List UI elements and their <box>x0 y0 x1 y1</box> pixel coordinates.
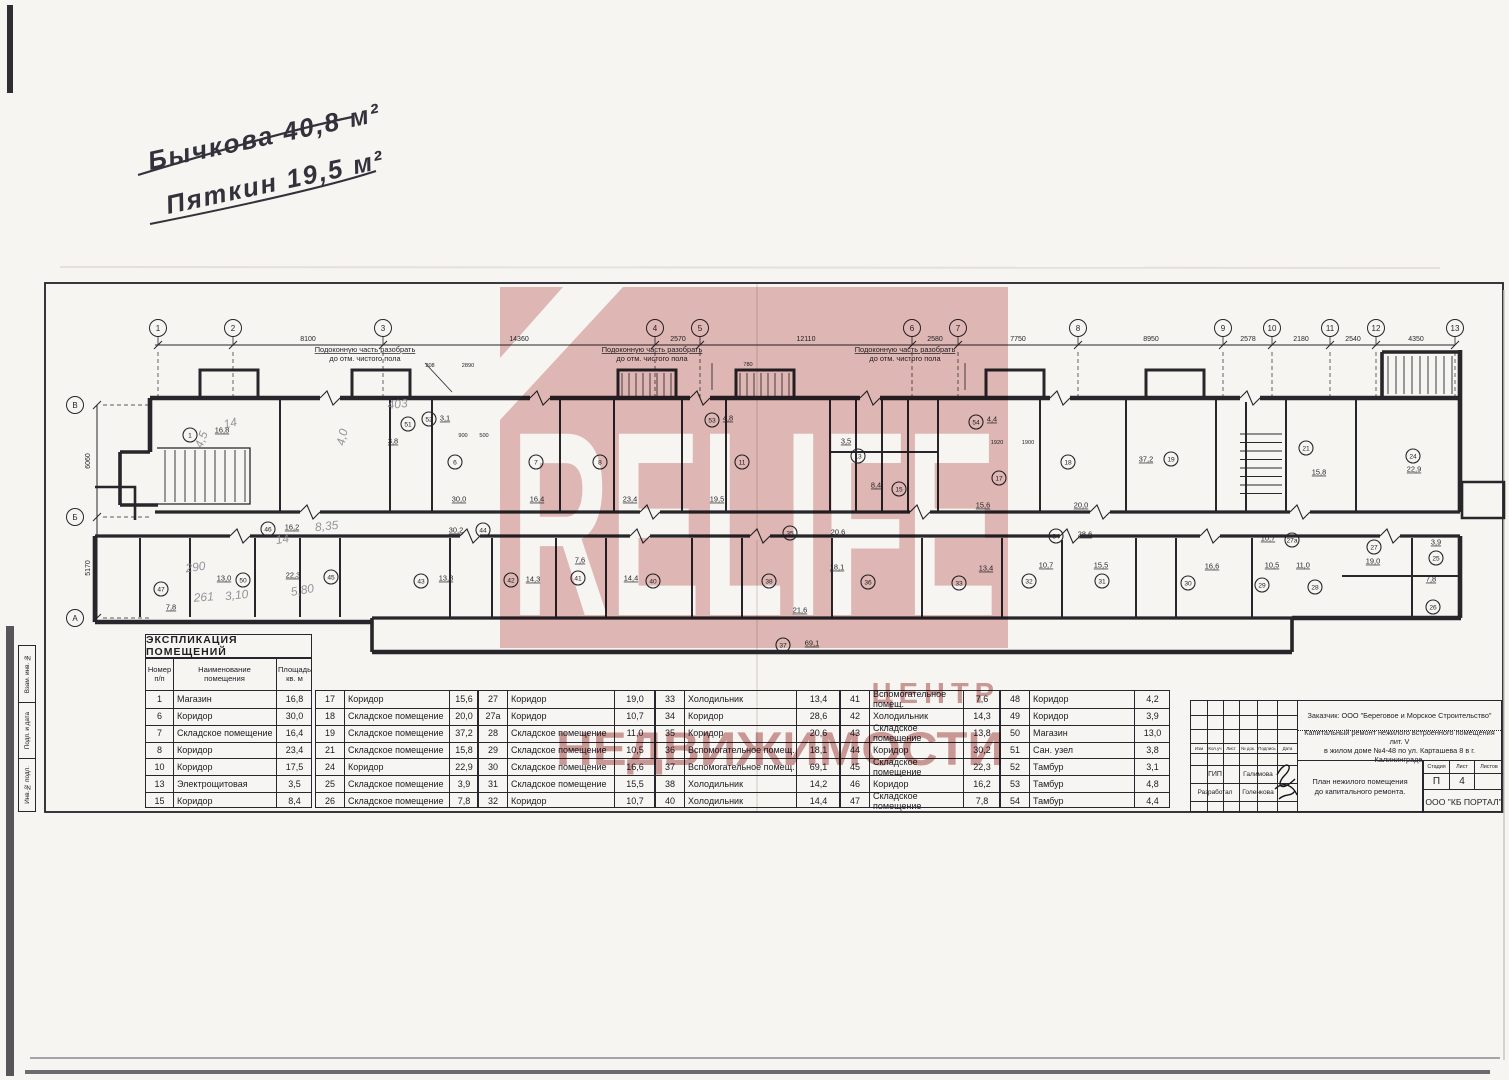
stage-value: П <box>1423 773 1449 789</box>
room-area: 14,3 <box>526 575 540 584</box>
room-number: 19 <box>1167 457 1175 464</box>
explication-cell-number: 10 <box>146 758 173 775</box>
explication-cell-area: 16,6 <box>614 758 656 775</box>
room-area: 14,4 <box>624 574 638 583</box>
explication-cell-number: 35 <box>656 725 684 742</box>
room-area: 20,6 <box>831 528 845 537</box>
room-label: 5013,0 <box>217 573 250 587</box>
explication-cell-name: Холодильник <box>684 691 800 708</box>
explication-cell-area: 7,8 <box>963 792 1001 809</box>
explication-cell-number: 36 <box>656 742 684 759</box>
axis-label: Б <box>72 513 77 522</box>
explication-cell-number: 41 <box>841 691 869 708</box>
room-area: 23,4 <box>623 495 637 504</box>
room-area: 19,0 <box>1366 557 1380 566</box>
axis-label: 5 <box>698 324 703 333</box>
explication-group: 1Магазин16,86Коридор30,07Складское помещ… <box>145 690 312 808</box>
explication-cell-area: 15,5 <box>614 775 656 792</box>
explication-cell-area: 16,4 <box>276 725 313 742</box>
explication-cell-name: Сан. узел <box>1029 742 1138 759</box>
annotation-line-2: до отм. чистого пола <box>869 354 941 363</box>
room-number: 8 <box>598 460 602 467</box>
side-strip-label: Подп. и дата <box>24 712 31 749</box>
pencil-note: 403 <box>387 396 409 412</box>
explication-cell-name: Складское помещение <box>344 742 453 759</box>
stage-header: Стадия <box>1423 761 1449 773</box>
explication-cell-area: 15,8 <box>449 742 479 759</box>
explication-cell-area: 22,9 <box>449 758 479 775</box>
room-number: 35 <box>786 531 794 538</box>
room-number: 41 <box>574 576 582 583</box>
room-label: 3210,7 <box>1022 561 1053 588</box>
explication-cell-number: 7 <box>146 725 173 742</box>
room-label: 1119,5 <box>710 455 749 504</box>
explication-cell-area: 14,2 <box>796 775 841 792</box>
explication-cell-name: Складское помещение <box>507 775 618 792</box>
room-area: 7,8 <box>1426 575 1436 584</box>
explication-cell-name: Коридор <box>173 758 280 775</box>
explication-cell-number: 19 <box>316 725 344 742</box>
explication-cell-area: 11,0 <box>614 725 656 742</box>
room-number: 32 <box>1025 579 1033 586</box>
explication-cell-number: 34 <box>656 708 684 725</box>
explication-cell-number: 15 <box>146 792 173 809</box>
explication-cell-name: Тамбур <box>1029 775 1138 792</box>
room-area: 3,9 <box>1431 538 1441 547</box>
axis-label: 12 <box>1372 324 1381 333</box>
pencil-note: 5,80 <box>290 581 316 599</box>
dimension-value: 2540 <box>1345 336 1361 343</box>
explication-cell-name: Складское помещение <box>869 725 967 742</box>
explication-cell-area: 22,3 <box>963 758 1001 775</box>
room-label: 1715,6 <box>976 471 1006 510</box>
explication-header-num: Номер п/п <box>146 659 173 691</box>
room-area: 22,3 <box>286 571 300 580</box>
room-label: 716,4 <box>529 455 544 504</box>
explication-cell-area: 13,4 <box>796 691 841 708</box>
room-number: 47 <box>157 587 165 594</box>
explication-cell-number: 37 <box>656 758 684 775</box>
explication-cell-number: 45 <box>841 758 869 775</box>
explication-cell-area: 10,5 <box>614 742 656 759</box>
room-number: 53 <box>708 418 716 425</box>
explication-cell-number: 13 <box>146 775 173 792</box>
explication-cell-number: 43 <box>841 725 869 742</box>
room-area: 3,8 <box>388 437 398 446</box>
room-label: 158,4 <box>871 481 906 496</box>
explication-cell-area: 3,5 <box>276 775 313 792</box>
room-label: 630,0 <box>448 455 466 504</box>
explication-group: 33Холодильник13,434Коридор28,635Коридор2… <box>655 690 840 808</box>
explication-cell-name: Складское помещение <box>173 725 280 742</box>
room-label: 2719,0 <box>1366 540 1381 566</box>
explication-cell-area: 10,7 <box>614 708 656 725</box>
room-number: 6 <box>453 460 457 467</box>
explication-cell-name: Электрощитовая <box>173 775 280 792</box>
room-number: 38 <box>765 579 773 586</box>
room-number: 51 <box>404 422 412 429</box>
title-block-right: Заказчик: ООО "Береговое и Морское Строи… <box>1298 701 1501 811</box>
explication-cell-name: Коридор <box>507 691 618 708</box>
pencil-note: 14 <box>222 415 238 432</box>
explication-cell-name: Вспомогательное помещ. <box>684 742 800 759</box>
axis-label: 1 <box>156 324 161 333</box>
explication-cell-area: 16,8 <box>276 691 313 708</box>
explication-cell-area: 18,1 <box>796 742 841 759</box>
annotation-line-1: Подоконную часть разобрать <box>602 345 703 354</box>
small-dimension: 780 <box>743 362 752 368</box>
room-label: 823,4 <box>593 455 637 504</box>
room-area: 11,0 <box>1296 561 1310 570</box>
stamp-name: Галимова <box>1239 765 1277 783</box>
explication-cell-number: 8 <box>146 742 173 759</box>
explication-cell-number: 47 <box>841 792 869 809</box>
explication-cell-name: Складское помещение <box>507 742 618 759</box>
explication-cell-number: 1 <box>146 691 173 708</box>
explication-cell-number: 52 <box>1001 758 1029 775</box>
stamp-col-header: № док. <box>1239 743 1257 753</box>
explication-cell-number: 29 <box>479 742 507 759</box>
explication-cell-number: 33 <box>656 691 684 708</box>
explication-cell-area: 3,8 <box>1134 742 1171 759</box>
room-area: 7,8 <box>166 603 176 612</box>
explication-cell-number: 17 <box>316 691 344 708</box>
explication-cell-area: 30,2 <box>963 742 1001 759</box>
room-label: 1820,0 <box>1061 455 1088 510</box>
axis-label: 4 <box>653 324 658 333</box>
explication-cell-number: 21 <box>316 742 344 759</box>
pencil-note: 290 <box>184 559 207 576</box>
explication-cell-area: 3,1 <box>1134 758 1171 775</box>
pencil-note: 4,0 <box>334 427 351 447</box>
room-label: 477,8 <box>154 582 176 612</box>
dimension-value: 12110 <box>797 336 816 343</box>
explication-cell-name: Коридор <box>173 792 280 809</box>
room-area: 69,1 <box>805 639 819 648</box>
room-area: 18,1 <box>830 563 844 572</box>
explication-cell-number: 24 <box>316 758 344 775</box>
room-area: 3,1 <box>440 414 450 423</box>
explication-cell-area: 7,8 <box>449 792 479 809</box>
explication-cell-area: 14,4 <box>796 792 841 809</box>
explication-header-area: Площадь кв. м <box>276 659 313 691</box>
explication-cell-number: 48 <box>1001 691 1029 708</box>
room-number: 43 <box>417 579 425 586</box>
explication-cell-number: 42 <box>841 708 869 725</box>
explication-cell-number: 54 <box>1001 792 1029 809</box>
room-label: 534,8 <box>705 413 733 427</box>
room-number: 36 <box>864 580 872 587</box>
room-number: 29 <box>1258 583 1266 590</box>
explication-cell-name: Складское помещение <box>344 792 453 809</box>
dimension-value: 8100 <box>300 336 316 343</box>
room-label: 2811,0 <box>1296 561 1322 594</box>
explication-cell-number: 18 <box>316 708 344 725</box>
title-block: Изм Кол.уч Лист № док. Подпись Дата ГИП … <box>1190 700 1502 812</box>
small-dimension: 500 <box>479 433 488 439</box>
explication-header: Номер п/пНаименование помещенияПлощадь к… <box>145 658 312 690</box>
room-area: 37,2 <box>1139 455 1153 464</box>
explication-cell-number: 32 <box>479 792 507 809</box>
explication-cell-area: 19,0 <box>614 691 656 708</box>
explication-cell-area: 13,0 <box>1134 725 1171 742</box>
room-number: 18 <box>1064 460 1072 467</box>
explication-cell-name: Коридор <box>173 708 280 725</box>
explication-cell-name: Коридор <box>507 792 618 809</box>
explication-cell-number: 49 <box>1001 708 1029 725</box>
axis-label: 10 <box>1268 324 1277 333</box>
room-number: 54 <box>972 420 980 427</box>
dimension-value: 4350 <box>1408 336 1424 343</box>
room-number: 40 <box>649 579 657 586</box>
wall <box>736 370 794 398</box>
stamp-name: Голенкова <box>1239 783 1277 801</box>
explication-cell-name: Коридор <box>1029 708 1138 725</box>
explication-cell-name: Вспомогательное помещ. <box>684 758 800 775</box>
wall <box>157 448 250 504</box>
small-dimension: 208 <box>425 363 434 369</box>
explication-cell-number: 27а <box>479 708 507 725</box>
explication-cell-name: Магазин <box>173 691 280 708</box>
small-dimension: 2890 <box>462 363 474 369</box>
room-label: 4214,3 <box>504 573 540 587</box>
room-area: 7,6 <box>575 556 585 565</box>
room-area: 15,5 <box>1094 561 1108 570</box>
small-dimension: 1900 <box>1022 440 1034 446</box>
explication-cell-area: 14,3 <box>963 708 1001 725</box>
scan-artifact <box>6 626 14 1076</box>
stamp-role: Разработал <box>1191 783 1239 801</box>
explication-cell-name: Складское помещение <box>344 775 453 792</box>
room-label: 4313,8 <box>414 574 453 588</box>
room-number: 27а <box>1286 538 1297 545</box>
explication-group: 17Коридор15,618Складское помещение20,019… <box>315 690 478 808</box>
explication-cell-name: Коридор <box>344 691 453 708</box>
room-number: 13 <box>854 454 862 461</box>
explication-cell-name: Складское помещение <box>344 725 453 742</box>
pencil-note: 8,35 <box>314 518 339 534</box>
room-number: 50 <box>239 578 247 585</box>
drawing-title-line-1: План нежилого помещения <box>1312 777 1407 787</box>
explication-cell-area: 23,4 <box>276 742 313 759</box>
room-number: 11 <box>739 460 746 467</box>
room-number: 15 <box>895 487 903 494</box>
handwritten-note: Бычкова 40,8 м² Пяткин 19,5 м² <box>138 97 387 224</box>
room-label: 417,6 <box>571 556 585 585</box>
room-number: 46 <box>264 527 272 534</box>
room-area: 10,7 <box>1039 561 1053 570</box>
room-number: 45 <box>327 575 335 582</box>
explication-cell-number: 40 <box>656 792 684 809</box>
pencil-note: 3,10 <box>224 587 249 603</box>
room-number: 30 <box>1184 581 1192 588</box>
room-area: 30,0 <box>452 495 466 504</box>
room-area: 13,0 <box>217 574 231 583</box>
wall <box>1462 482 1504 518</box>
room-number: 37 <box>779 643 787 650</box>
room-label: 2910,5 <box>1255 561 1279 592</box>
axis-label: 11 <box>1326 324 1335 333</box>
explication-cell-area: 10,7 <box>614 792 656 809</box>
explication-cell-name: Складское помещение <box>869 792 967 809</box>
stamp-role: ГИП <box>1191 765 1239 783</box>
room-number: 24 <box>1409 454 1417 461</box>
project-description: Капитальный ремонт нежилого встроенного … <box>1298 731 1501 761</box>
explication-cell-name: Холодильник <box>684 792 800 809</box>
room-area: 16,6 <box>1205 562 1219 571</box>
explication-cell-area: 8,4 <box>276 792 313 809</box>
explication-cell-area: 4,4 <box>1134 792 1171 809</box>
sheets-total <box>1474 773 1503 789</box>
room-label: 3115,5 <box>1094 561 1109 588</box>
stamp-col-header: Подпись <box>1257 743 1277 753</box>
room-number: 28 <box>1311 585 1319 592</box>
annotation-line-2: до отм. чистого пола <box>616 354 688 363</box>
explication-cell-area: 17,5 <box>276 758 313 775</box>
explication-cell-number: 38 <box>656 775 684 792</box>
dimension-value: 2570 <box>670 336 686 343</box>
dimension-value: 2180 <box>1293 336 1309 343</box>
room-area: 21,6 <box>793 606 807 615</box>
wall <box>200 370 258 398</box>
side-strip-label: Взам. инв. № <box>24 654 31 693</box>
room-area: 30,2 <box>449 526 463 535</box>
title-block-left-grid: Изм Кол.уч Лист № док. Подпись Дата ГИП … <box>1191 701 1298 811</box>
explication-cell-name: Складское помещение <box>344 708 453 725</box>
dimension-value: 2580 <box>927 336 943 343</box>
room-number: 21 <box>1302 446 1310 453</box>
explication-cell-area: 16,2 <box>963 775 1001 792</box>
drawing-title-line-2: до капитального ремонта. <box>1315 787 1406 797</box>
room-label: 1937,2 <box>1139 452 1178 466</box>
room-area: 4,4 <box>987 415 997 424</box>
explication-cell-name: Коридор <box>344 758 453 775</box>
dimension-value: 2578 <box>1240 336 1256 343</box>
room-number: 42 <box>507 578 515 585</box>
stamp-col-header: Кол.уч <box>1207 743 1223 753</box>
stamp-col-header: Изм <box>1191 743 1207 753</box>
room-area: 19,5 <box>710 495 724 504</box>
pencil-note: 261 <box>192 589 214 604</box>
explication-group: 27Коридор19,027аКоридор10,728Складское п… <box>478 690 655 808</box>
explication-cell-area: 69,1 <box>796 758 841 775</box>
signature-scribble <box>1273 755 1299 807</box>
wall <box>618 370 676 398</box>
explication-cell-area: 28,6 <box>796 708 841 725</box>
explication-cell-name: Складское помещение <box>507 725 618 742</box>
explication-cell-area: 3,9 <box>1134 708 1171 725</box>
room-label: 513,8 <box>388 417 415 446</box>
axis-label: 6 <box>910 324 915 333</box>
explication-cell-area: 37,2 <box>449 725 479 742</box>
explication-cell-area: 4,2 <box>1134 691 1171 708</box>
wall <box>1146 370 1204 398</box>
room-number: 26 <box>1429 605 1437 612</box>
explication-cell-number: 30 <box>479 758 507 775</box>
explication-cell-area: 3,9 <box>449 775 479 792</box>
company-name: ООО "КБ ПОРТАЛ" <box>1423 789 1503 813</box>
annotation-line-1: Подоконную часть разобрать <box>855 345 956 354</box>
room-label: 267,8 <box>1426 575 1440 614</box>
explication-cell-area: 15,6 <box>449 691 479 708</box>
stamp-col-header: Дата <box>1277 743 1298 753</box>
explication-cell-number: 25 <box>316 775 344 792</box>
explication-cell-area: 20,6 <box>796 725 841 742</box>
axis-label: 9 <box>1221 324 1226 333</box>
room-area: 22,9 <box>1407 465 1421 474</box>
explication-cell-area: 4,8 <box>1134 775 1171 792</box>
room-number: 44 <box>479 528 487 535</box>
room-label: 3618,1 <box>830 563 875 589</box>
explication-cell-number: 53 <box>1001 775 1029 792</box>
explication-cell-area: 20,0 <box>449 708 479 725</box>
axis-label: В <box>72 401 77 410</box>
dimension-value: 14360 <box>509 336 529 343</box>
explication-cell-name: Коридор <box>684 708 800 725</box>
explication-cell-name: Холодильник <box>684 775 800 792</box>
explication-cell-number: 27 <box>479 691 507 708</box>
room-area: 4,8 <box>723 414 733 423</box>
explication-cell-number: 28 <box>479 725 507 742</box>
room-number: 27 <box>1370 545 1378 552</box>
room-label: 2422,9 <box>1406 449 1421 474</box>
room-area: 28,6 <box>1078 530 1092 539</box>
project-line-1: Капитальный ремонт нежилого встроенного … <box>1298 728 1501 746</box>
axis-label: 3 <box>381 324 386 333</box>
explication-cell-name: Складское помещение <box>869 758 967 775</box>
stage-table: Стадия Лист Листов П 4 ООО "КБ ПОРТАЛ" <box>1423 761 1503 813</box>
side-strip-label: Инв.№ подл. <box>24 766 31 804</box>
room-number: 33 <box>955 581 963 588</box>
explication-cell-name: Коридор <box>507 708 618 725</box>
sheets-header: Листов <box>1474 761 1503 773</box>
dimension-value: 6060 <box>85 453 92 469</box>
explication-cell-number: 6 <box>146 708 173 725</box>
drawing-title: План нежилого помещения до капитального … <box>1298 761 1423 813</box>
wall <box>986 370 1044 398</box>
explication-cell-name: Магазин <box>1029 725 1138 742</box>
scan-artifact <box>7 5 13 93</box>
scan-edge <box>25 1070 1490 1074</box>
room-area: 13,8 <box>439 574 453 583</box>
room-label: 4014,4 <box>624 574 660 588</box>
annotation-line-1: Подоконную часть разобрать <box>315 345 416 354</box>
explication-cell-name: Тамбур <box>1029 792 1138 809</box>
dimension-value: 7750 <box>1010 336 1026 343</box>
explication-cell-number: 44 <box>841 742 869 759</box>
explication-cell-area: 7,6 <box>963 691 1001 708</box>
floor-plan-drawing: Бычкова 40,8 м² Пяткин 19,5 м² 123456789… <box>0 0 1509 1080</box>
room-number: 7 <box>534 460 538 467</box>
room-area: 16,4 <box>530 495 544 504</box>
room-area: 13,4 <box>979 564 993 573</box>
room-label: 3313,4 <box>952 564 993 590</box>
room-number: 1 <box>188 433 192 440</box>
explication-cell-area: 13,8 <box>963 725 1001 742</box>
room-label: 2115,8 <box>1299 441 1326 477</box>
customer-line: Заказчик: ООО "Береговое и Морское Строи… <box>1298 701 1501 731</box>
room-number: 25 <box>1432 556 1440 563</box>
dimension-value: 5170 <box>85 560 92 576</box>
room-number: 17 <box>995 476 1003 483</box>
explication-cell-number: 51 <box>1001 742 1029 759</box>
room-label: 3520,6 <box>783 526 845 540</box>
side-stamp-strip: Взам. инв. № Подп. и дата Инв.№ подл. <box>18 645 36 812</box>
room-label: 3821,6 <box>762 574 807 615</box>
sheet-header: Лист <box>1449 761 1474 773</box>
axis-label: А <box>72 614 78 623</box>
stamp-col-header: Лист <box>1223 743 1239 753</box>
